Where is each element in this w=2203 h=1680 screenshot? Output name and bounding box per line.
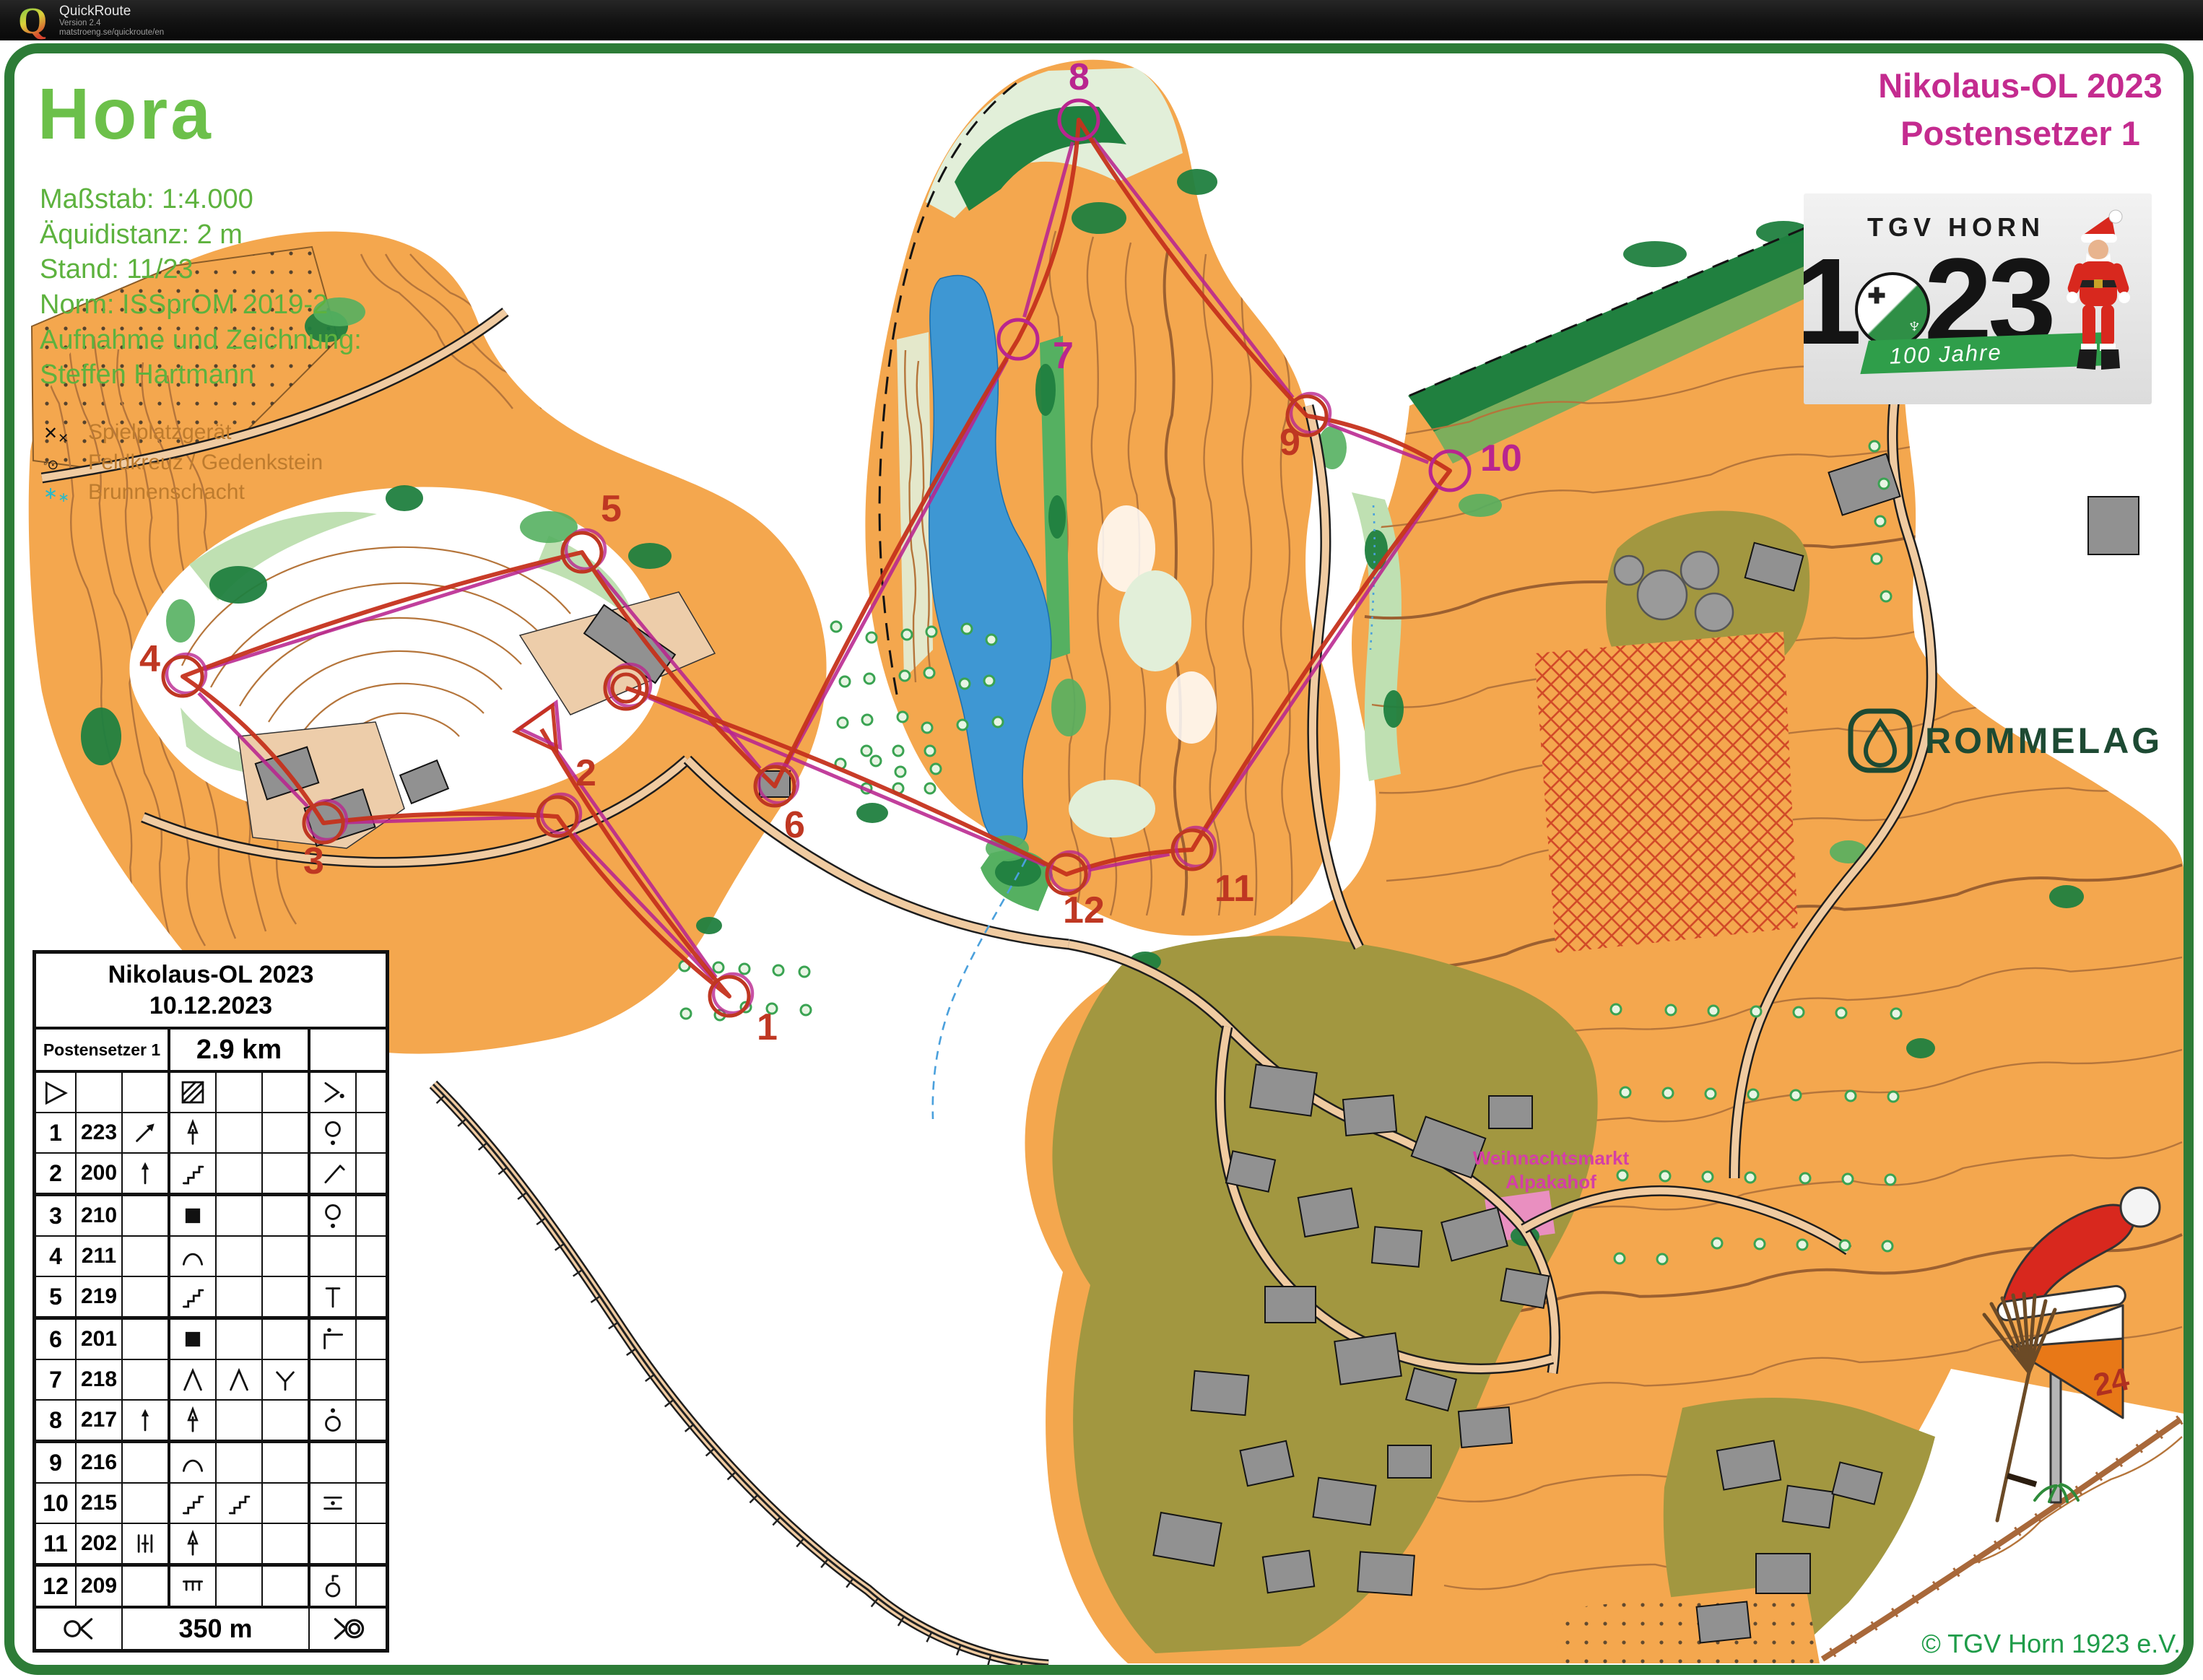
svg-text:Q: Q xyxy=(18,1,47,42)
control-number: 1 xyxy=(757,1006,778,1048)
quickroute-logo-icon: Q xyxy=(16,1,53,42)
control-number: 6 xyxy=(784,804,805,846)
control-number: 11 xyxy=(1215,868,1254,910)
control-number: 10 xyxy=(1480,438,1522,479)
map-sheet-frame: 123456789101112 xyxy=(4,43,2194,1675)
app-version: Version 2.4 xyxy=(59,19,164,28)
control-number: 2 xyxy=(575,752,596,794)
control-number: 9 xyxy=(1279,422,1300,463)
control-number: 7 xyxy=(1053,335,1074,377)
control-number: 3 xyxy=(303,840,324,882)
control-number: 5 xyxy=(601,488,622,530)
app-title: QuickRoute xyxy=(59,4,164,19)
control-number: 12 xyxy=(1063,889,1105,931)
control-number: 8 xyxy=(1069,56,1090,98)
titlebar[interactable]: Q QuickRoute Version 2.4 matstroeng.se/q… xyxy=(0,0,2203,40)
control-number: 4 xyxy=(139,638,160,680)
app-url: matstroeng.se/quickroute/en xyxy=(59,28,164,38)
orienteering-map[interactable]: 123456789101112 xyxy=(4,43,2194,1675)
